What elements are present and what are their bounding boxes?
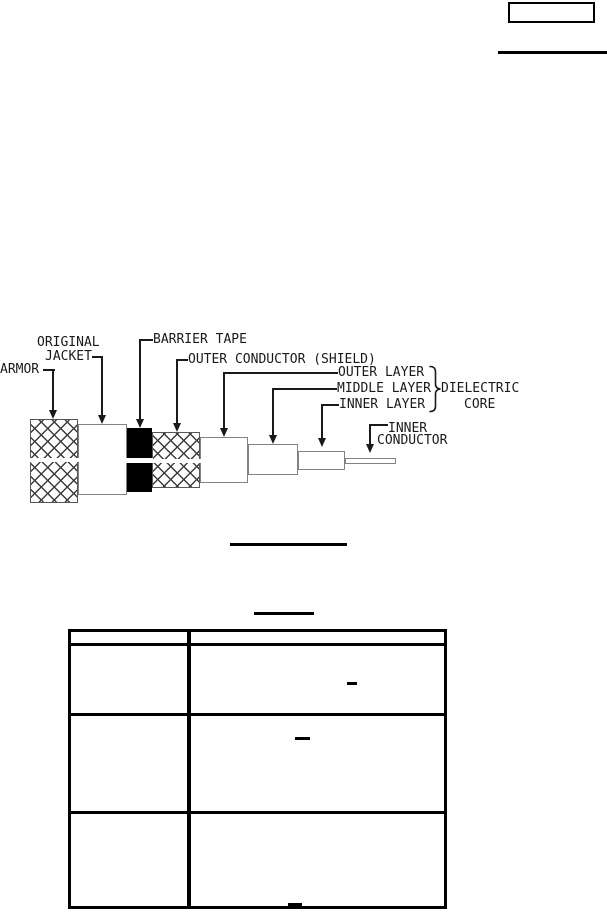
outer-layer-label: OUTER LAYER — [338, 366, 424, 379]
table-cell-dash-mark — [295, 737, 310, 740]
barrier-tape-label: BARRIER TAPE — [153, 333, 247, 346]
table-cell-dash-mark — [288, 903, 302, 907]
inner-conductor-strip — [345, 458, 396, 464]
inner-conductor-leader-h — [369, 424, 388, 426]
centerline-gap-barrier — [126, 458, 153, 463]
barrier-leader-v — [139, 339, 141, 419]
inner-layer-arrow-icon — [318, 438, 326, 447]
original-jacket-label-line2: JACKET — [45, 350, 92, 363]
outer-layer-block — [200, 437, 248, 483]
outer-conductor-arrow-icon — [173, 423, 181, 432]
jacket-arrow-icon — [98, 415, 106, 424]
table-border — [68, 629, 447, 909]
table-row-divider-2 — [68, 811, 447, 814]
table-column-divider — [187, 629, 191, 909]
inner-conductor-label-line2: CONDUCTOR — [377, 434, 447, 447]
table-title-underline — [254, 612, 314, 615]
original-jacket-block — [78, 424, 127, 495]
barrier-leader-h — [140, 339, 153, 341]
armor-leader-v — [52, 369, 54, 410]
dielectric-core-label-line1: DIELECTRIC — [441, 382, 519, 395]
inner-conductor-arrow-icon — [366, 444, 374, 453]
middle-layer-block — [248, 444, 298, 475]
inner-layer-label: INNER LAYER — [339, 398, 425, 411]
dielectric-core-label-line2: CORE — [464, 398, 495, 411]
barrier-arrow-icon — [136, 419, 144, 428]
centerline-gap-armor — [29, 458, 79, 462]
middle-layer-leader-v — [272, 388, 274, 435]
outer-conductor-leader-h — [177, 359, 188, 361]
middle-layer-label: MIDDLE LAYER — [337, 382, 431, 395]
table-header-divider — [68, 643, 447, 646]
inner-layer-block — [298, 451, 345, 470]
original-jacket-label-line1: ORIGINAL — [37, 336, 100, 349]
armor-arrow-icon — [49, 410, 57, 419]
outer-layer-leader-h — [223, 372, 338, 374]
jacket-leader-v — [101, 356, 103, 415]
middle-layer-arrow-icon — [269, 435, 277, 444]
inner-layer-leader-h — [321, 404, 339, 406]
middle-layer-leader-h — [272, 388, 337, 390]
header-rule — [498, 51, 607, 54]
document-page: ARMOR ORIGINAL JACKET BARRIER TAPE OUTER… — [0, 0, 607, 912]
inner-conductor-leader-v — [369, 424, 371, 444]
armor-label: ARMOR — [0, 363, 39, 376]
inner-layer-leader-v — [321, 404, 323, 438]
outer-layer-arrow-icon — [220, 428, 228, 437]
figure-caption-underline — [230, 543, 347, 546]
header-form-box — [508, 2, 595, 23]
centerline-gap-outer-conductor — [151, 459, 201, 463]
outer-layer-leader-v — [223, 372, 225, 428]
outer-conductor-leader-v — [176, 359, 178, 423]
table-row-divider-1 — [68, 713, 447, 716]
table-cell-dash-mark — [347, 682, 357, 685]
